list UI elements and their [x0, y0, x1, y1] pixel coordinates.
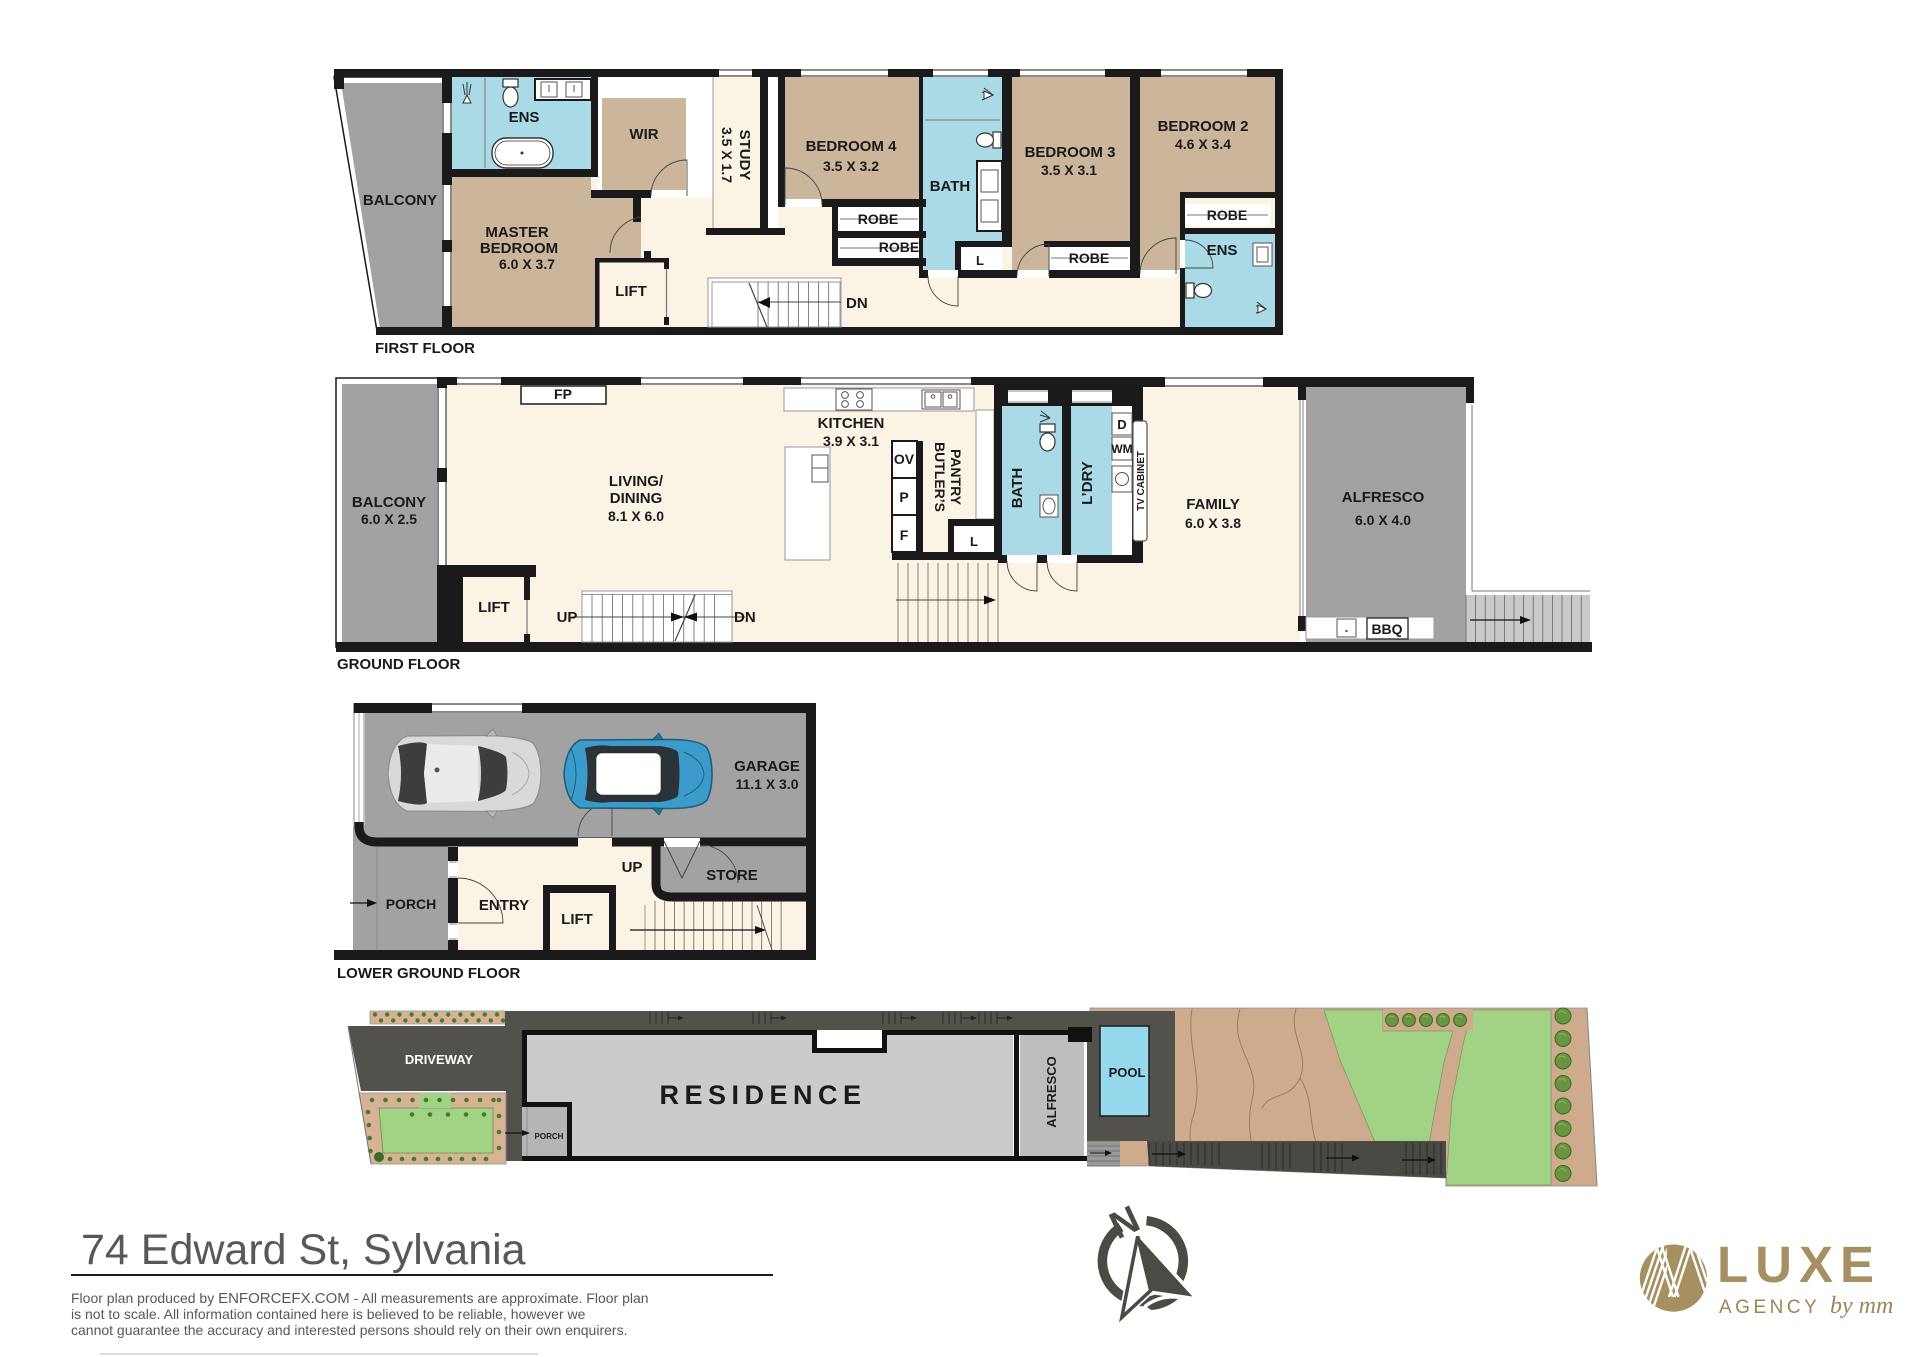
- svg-text:BEDROOM 4: BEDROOM 4: [806, 138, 898, 155]
- svg-text:BALCONY: BALCONY: [363, 192, 437, 209]
- svg-text:ROBE: ROBE: [1069, 250, 1109, 266]
- svg-text:FIRST FLOOR: FIRST FLOOR: [375, 340, 475, 357]
- svg-text:L: L: [970, 534, 978, 549]
- svg-text:WM: WM: [1111, 442, 1132, 456]
- svg-text:AGENCY: AGENCY: [1719, 1297, 1820, 1318]
- svg-text:DINING: DINING: [610, 490, 663, 507]
- svg-text:ROBE: ROBE: [858, 211, 898, 227]
- svg-text:P: P: [899, 489, 908, 505]
- svg-text:OV: OV: [894, 451, 915, 467]
- svg-text:ALFRESCO: ALFRESCO: [1342, 489, 1425, 506]
- svg-text:BUTLER’S: BUTLER’S: [932, 442, 948, 512]
- svg-text:is not to scale. All informati: is not to scale. All information contain…: [71, 1306, 586, 1322]
- svg-text:LOWER GROUND FLOOR: LOWER GROUND FLOOR: [337, 965, 520, 982]
- svg-text:WIR: WIR: [629, 126, 658, 143]
- svg-text:FP: FP: [554, 386, 572, 402]
- svg-text:6.0 X 3.8: 6.0 X 3.8: [1185, 515, 1241, 531]
- svg-text:3.9 X 3.1: 3.9 X 3.1: [823, 433, 879, 449]
- svg-text:LUXE: LUXE: [1717, 1236, 1881, 1293]
- svg-text:LIFT: LIFT: [561, 911, 593, 928]
- svg-text:L’DRY: L’DRY: [1079, 461, 1096, 505]
- svg-text:UP: UP: [622, 859, 643, 876]
- svg-text:3.5 X 3.1: 3.5 X 3.1: [1041, 162, 1097, 178]
- svg-text:RESIDENCE: RESIDENCE: [659, 1080, 866, 1110]
- svg-text:ALFRESCO: ALFRESCO: [1044, 1056, 1059, 1128]
- svg-text:BEDROOM 3: BEDROOM 3: [1025, 144, 1116, 161]
- svg-text:6.0 X 4.0: 6.0 X 4.0: [1355, 512, 1411, 528]
- svg-text:MASTER: MASTER: [485, 224, 549, 241]
- svg-text:Floor plan produced by ENFORCE: Floor plan produced by ENFORCEFX.COM - A…: [71, 1290, 649, 1307]
- svg-text:ROBE: ROBE: [1207, 207, 1247, 223]
- svg-text:PANTRY: PANTRY: [948, 449, 964, 506]
- svg-text:4.6 X 3.4: 4.6 X 3.4: [1175, 136, 1231, 152]
- svg-text:PORCH: PORCH: [535, 1132, 564, 1141]
- svg-text:F: F: [900, 527, 909, 543]
- svg-text:TV CABINET: TV CABINET: [1136, 451, 1147, 511]
- svg-text:DN: DN: [734, 609, 756, 626]
- svg-text:11.1 X 3.0: 11.1 X 3.0: [735, 776, 798, 792]
- svg-text:BATH: BATH: [930, 178, 971, 195]
- svg-text:ENS: ENS: [509, 109, 540, 126]
- svg-text:8.1 X 6.0: 8.1 X 6.0: [608, 508, 664, 524]
- svg-text:6.0 X 2.5: 6.0 X 2.5: [361, 511, 417, 527]
- svg-text:LIVING/: LIVING/: [609, 473, 664, 490]
- svg-text:by mm: by mm: [1830, 1293, 1893, 1319]
- svg-text:LIFT: LIFT: [615, 283, 647, 300]
- svg-text:3.5 X 1.7: 3.5 X 1.7: [719, 127, 735, 183]
- svg-text:STUDY: STUDY: [736, 130, 753, 181]
- svg-text:FAMILY: FAMILY: [1186, 496, 1240, 513]
- svg-text:ENS: ENS: [1207, 242, 1238, 259]
- svg-text:UP: UP: [557, 609, 578, 626]
- svg-text:6.0 X 3.7: 6.0 X 3.7: [499, 256, 555, 272]
- svg-text:GROUND FLOOR: GROUND FLOOR: [337, 656, 460, 673]
- svg-text:BATH: BATH: [1009, 468, 1026, 509]
- svg-text:ENTRY: ENTRY: [479, 897, 529, 914]
- svg-text:GARAGE: GARAGE: [734, 758, 800, 775]
- svg-text:POOL: POOL: [1109, 1065, 1146, 1080]
- svg-text:3.5 X 3.2: 3.5 X 3.2: [823, 158, 879, 174]
- svg-text:KITCHEN: KITCHEN: [818, 415, 885, 432]
- svg-text:DN: DN: [846, 295, 868, 312]
- svg-text:D: D: [1117, 417, 1126, 432]
- svg-text:BALCONY: BALCONY: [352, 494, 426, 511]
- svg-text:BEDROOM 2: BEDROOM 2: [1158, 118, 1249, 135]
- svg-text:74 Edward St, Sylvania: 74 Edward St, Sylvania: [81, 1226, 526, 1274]
- svg-text:ROBE: ROBE: [879, 239, 919, 255]
- svg-text:STORE: STORE: [706, 867, 757, 884]
- svg-text:DRIVEWAY: DRIVEWAY: [405, 1052, 473, 1067]
- svg-text:BBQ: BBQ: [1371, 621, 1402, 637]
- svg-text:L: L: [976, 253, 984, 268]
- svg-text:LIFT: LIFT: [478, 599, 510, 616]
- svg-text:PORCH: PORCH: [386, 896, 437, 912]
- svg-text:cannot guarantee the accuracy: cannot guarantee the accuracy and intere…: [71, 1322, 627, 1338]
- svg-text:BEDROOM: BEDROOM: [480, 240, 558, 257]
